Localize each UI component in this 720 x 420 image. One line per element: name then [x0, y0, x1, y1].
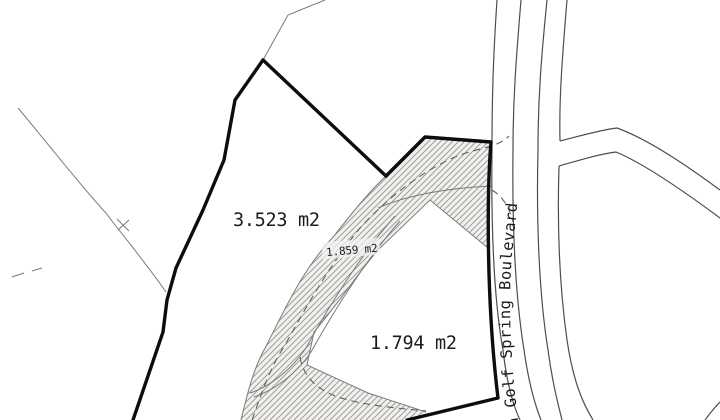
area-label-large-parcel: 3.523 m2: [233, 210, 320, 231]
site-plan-map: 3.523 m2 1.859 m2 1.794 m2 n Golf Spring…: [0, 0, 720, 420]
area-label-small-parcel: 1.794 m2: [370, 333, 457, 354]
scanned-cadastral-plan: 3.523 m2 1.859 m2 1.794 m2 n Golf Spring…: [0, 0, 720, 420]
